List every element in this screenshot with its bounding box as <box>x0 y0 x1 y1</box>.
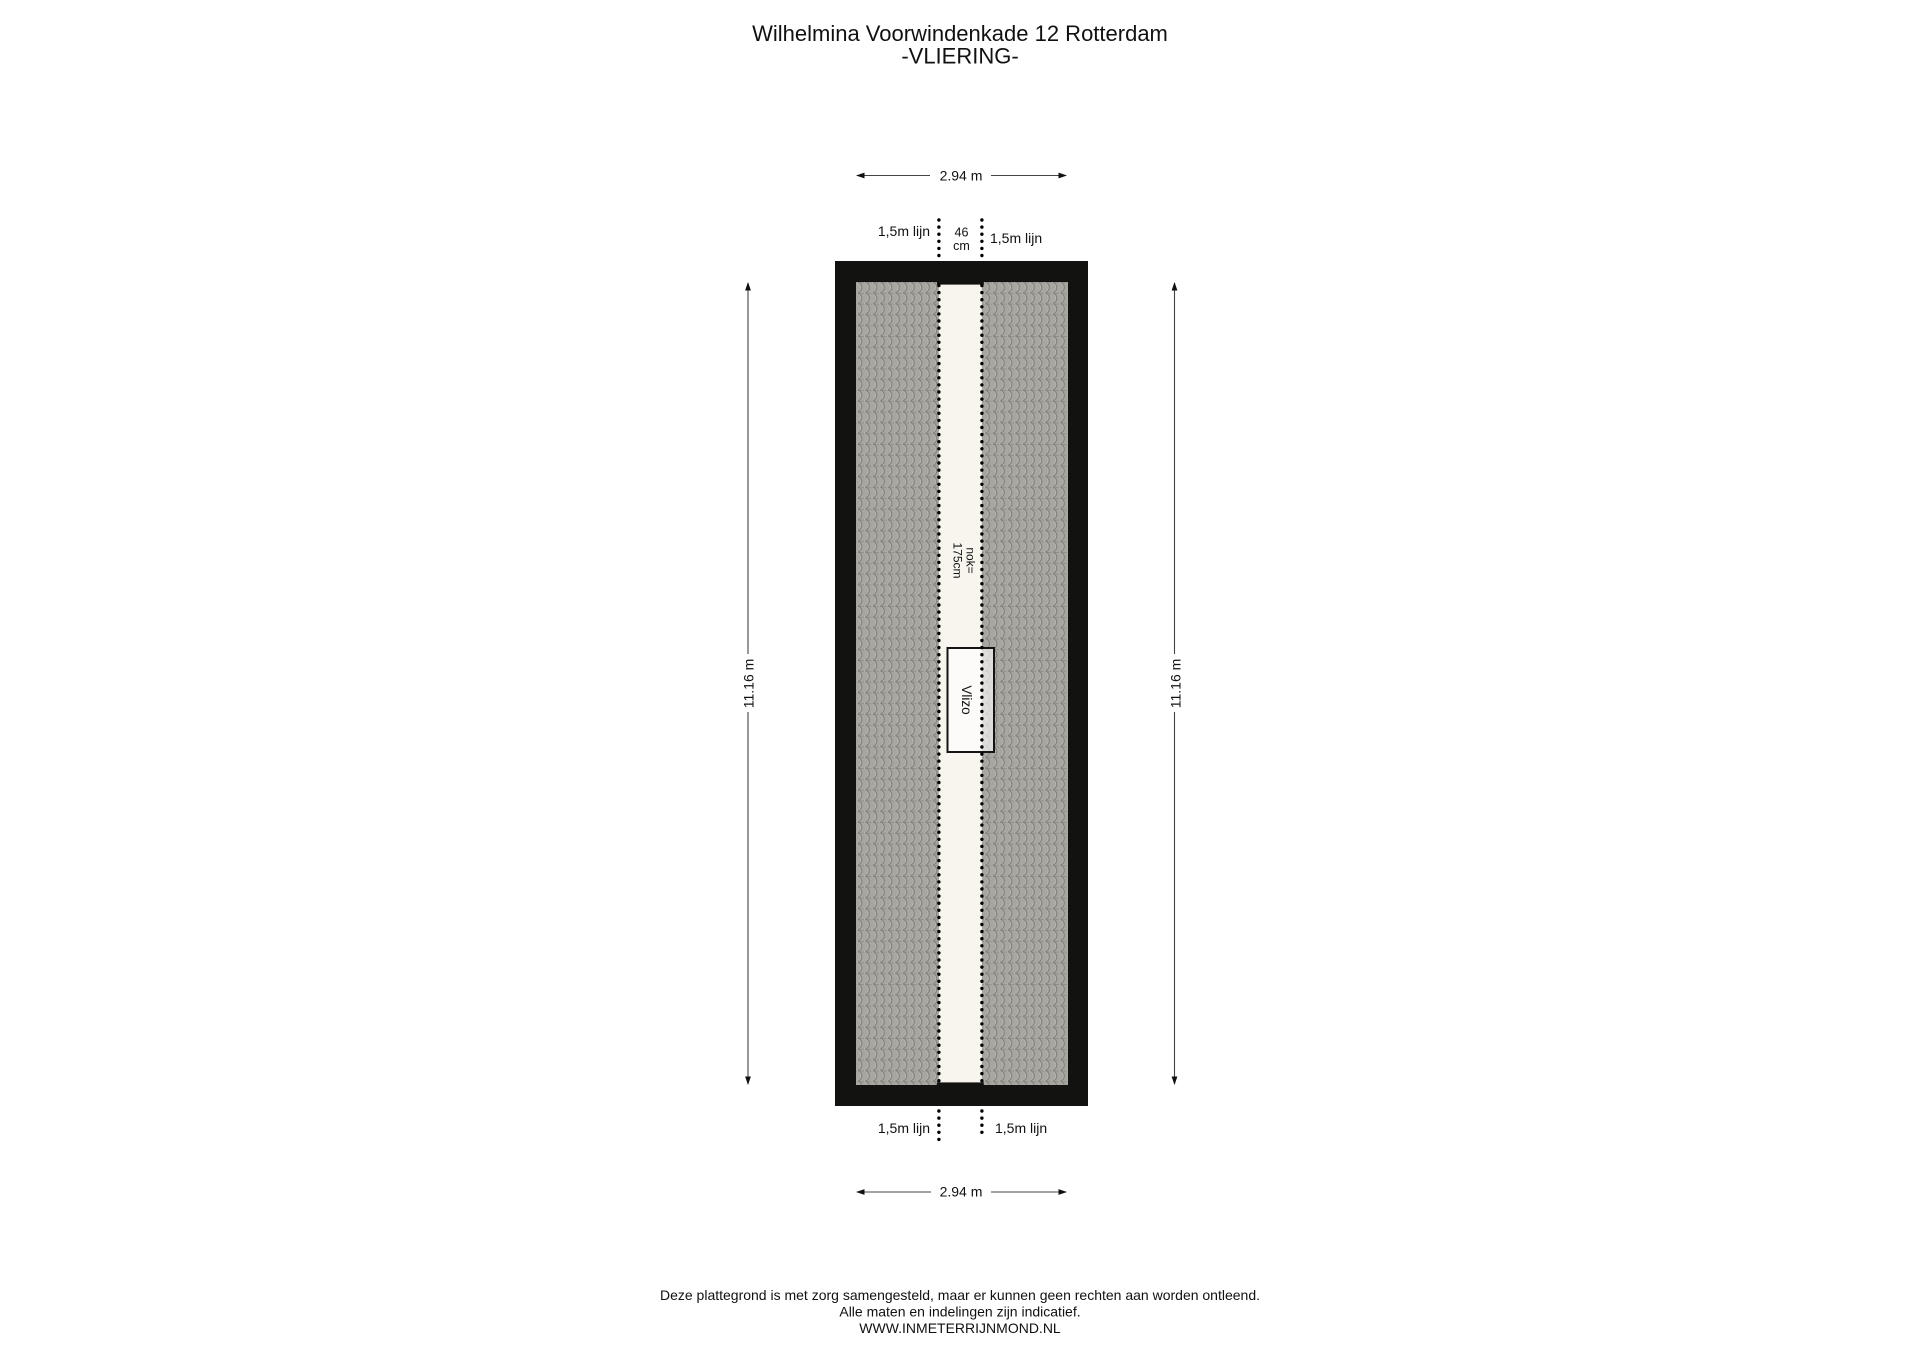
svg-text:1,5m lijn: 1,5m lijn <box>990 230 1042 246</box>
svg-text:Wilhelmina Voorwindenkade 12 R: Wilhelmina Voorwindenkade 12 Rotterdam <box>752 21 1168 46</box>
svg-text:-VLIERING-: -VLIERING- <box>901 44 1018 69</box>
svg-text:1,5m lijn: 1,5m lijn <box>878 1120 930 1136</box>
svg-text:WWW.INMETERRIJNMOND.NL: WWW.INMETERRIJNMOND.NL <box>859 1320 1061 1336</box>
svg-text:1,5m lijn: 1,5m lijn <box>995 1120 1047 1136</box>
svg-text:2.94 m: 2.94 m <box>940 1184 983 1200</box>
svg-text:46: 46 <box>955 226 969 240</box>
svg-text:Alle maten en indelingen zijn: Alle maten en indelingen zijn indicatief… <box>839 1303 1080 1319</box>
svg-text:nok=175cm: nok=175cm <box>951 542 978 578</box>
svg-text:Vlizo: Vlizo <box>959 685 974 714</box>
svg-text:Deze plattegrond is met zorg s: Deze plattegrond is met zorg samengestel… <box>660 1287 1260 1303</box>
svg-text:1,5m lijn: 1,5m lijn <box>878 223 930 239</box>
svg-text:11.16 m: 11.16 m <box>741 659 757 709</box>
svg-text:cm: cm <box>953 239 970 253</box>
svg-text:2.94 m: 2.94 m <box>940 168 983 184</box>
svg-text:11.16 m: 11.16 m <box>1168 659 1184 709</box>
